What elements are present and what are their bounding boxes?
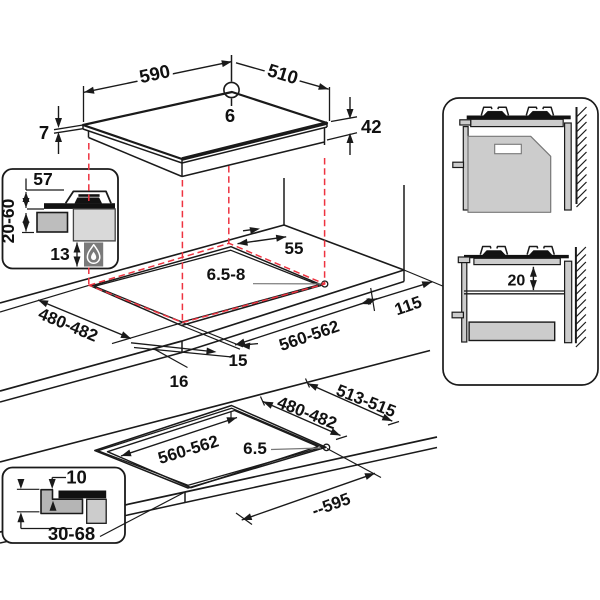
svg-text:6: 6	[225, 105, 235, 126]
svg-text:13: 13	[50, 244, 70, 264]
svg-text:7: 7	[39, 122, 49, 143]
svg-text:560-562: 560-562	[277, 317, 342, 355]
svg-text:10: 10	[66, 467, 87, 488]
svg-text:115: 115	[392, 292, 424, 319]
svg-text:15: 15	[229, 351, 248, 370]
svg-text:6.5-8: 6.5-8	[207, 265, 246, 284]
svg-text:20: 20	[508, 273, 526, 290]
svg-text:30-68: 30-68	[48, 523, 95, 544]
svg-text:6.5: 6.5	[243, 439, 267, 458]
svg-text:20-60: 20-60	[0, 198, 18, 243]
svg-text:590: 590	[137, 60, 172, 87]
svg-text:480-482: 480-482	[275, 393, 340, 434]
svg-text:57: 57	[33, 169, 52, 189]
svg-text:55: 55	[285, 239, 304, 258]
svg-text:510: 510	[265, 59, 301, 88]
svg-text:16: 16	[170, 372, 189, 391]
svg-text:513-515: 513-515	[334, 381, 399, 422]
svg-text:42: 42	[361, 116, 382, 137]
svg-text:560-562: 560-562	[156, 432, 221, 468]
svg-text:480-482: 480-482	[36, 304, 101, 345]
